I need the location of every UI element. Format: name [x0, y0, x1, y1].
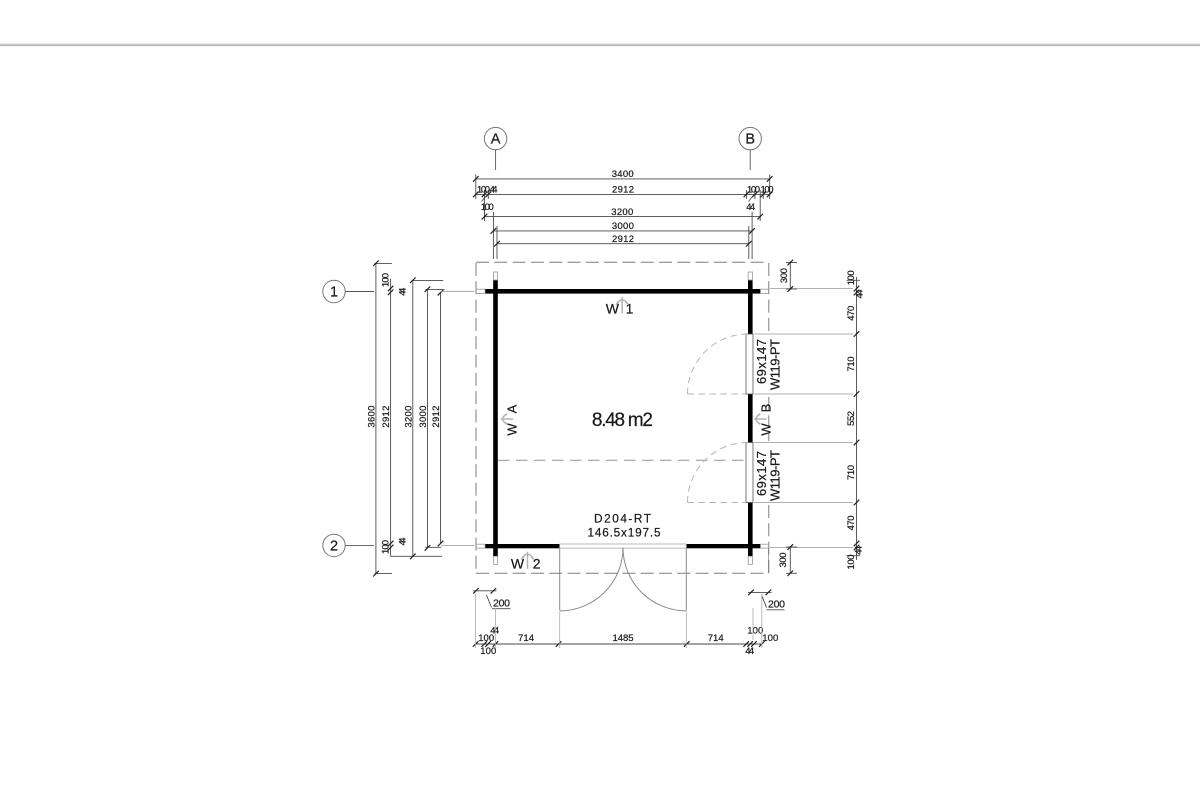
svg-text:44: 44 [854, 546, 865, 555]
svg-text:3400: 3400 [612, 169, 634, 180]
svg-text:714: 714 [518, 633, 534, 644]
svg-text:100: 100 [381, 273, 392, 287]
svg-text:44: 44 [745, 646, 754, 657]
svg-text:W119-PT: W119-PT [768, 339, 783, 390]
svg-text:2912: 2912 [381, 406, 392, 428]
svg-text:B: B [745, 132, 755, 148]
svg-text:44: 44 [397, 288, 408, 296]
svg-text:3200: 3200 [611, 207, 633, 218]
svg-text:3600: 3600 [366, 406, 377, 428]
svg-text:2912: 2912 [612, 234, 634, 245]
svg-text:552: 552 [846, 411, 857, 426]
svg-text:2: 2 [533, 556, 541, 572]
svg-text:100: 100 [481, 202, 494, 213]
svg-text:3000: 3000 [612, 221, 634, 232]
svg-text:300: 300 [779, 268, 790, 283]
svg-text:100: 100 [480, 646, 496, 657]
svg-text:100: 100 [762, 633, 778, 644]
svg-text:100: 100 [761, 185, 774, 196]
svg-text:W: W [759, 423, 774, 436]
svg-text:100: 100 [478, 633, 494, 644]
svg-text:3200: 3200 [403, 406, 414, 428]
svg-text:100: 100 [747, 185, 760, 196]
svg-text:2: 2 [330, 539, 338, 555]
svg-text:W: W [505, 423, 520, 436]
svg-text:146.5x197.5: 146.5x197.5 [588, 525, 661, 539]
svg-text:714: 714 [708, 633, 724, 644]
svg-text:710: 710 [846, 357, 857, 372]
svg-text:B: B [759, 404, 774, 413]
svg-text:100: 100 [747, 626, 763, 637]
svg-text:100: 100 [381, 540, 392, 554]
svg-text:200: 200 [493, 597, 510, 609]
svg-text:W119-PT: W119-PT [768, 450, 783, 501]
svg-text:2912: 2912 [431, 406, 442, 428]
svg-text:44: 44 [490, 185, 498, 196]
svg-text:A: A [505, 404, 520, 413]
svg-text:300: 300 [778, 553, 789, 568]
svg-text:710: 710 [846, 465, 857, 480]
svg-text:100: 100 [477, 185, 490, 196]
svg-text:1485: 1485 [613, 633, 634, 644]
svg-text:44: 44 [746, 202, 755, 213]
svg-text:1: 1 [330, 285, 338, 301]
svg-text:2912: 2912 [612, 185, 634, 196]
svg-text:8.48 m2: 8.48 m2 [592, 410, 653, 431]
svg-text:A: A [491, 132, 501, 148]
svg-text:470: 470 [846, 306, 857, 321]
svg-text:44: 44 [397, 538, 408, 546]
svg-text:100: 100 [846, 555, 857, 570]
svg-text:44: 44 [855, 290, 866, 299]
svg-text:200: 200 [768, 598, 785, 610]
svg-text:470: 470 [846, 516, 857, 531]
svg-text:3000: 3000 [418, 406, 429, 428]
svg-text:100: 100 [846, 270, 857, 285]
